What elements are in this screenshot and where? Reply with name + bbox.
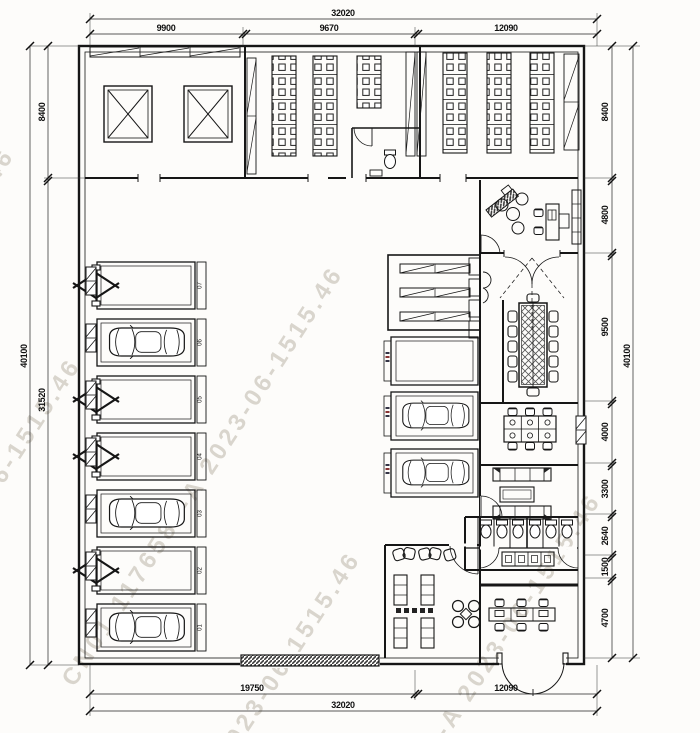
bay-number-label: 04 [198,453,204,460]
dim-bottom-total: 32020 [331,700,355,710]
bay-number-label: 05 [198,396,204,403]
chair-icon [495,599,504,607]
chair-icon [534,227,543,235]
dim-left-total: 40100 [19,344,29,368]
car-icon [110,496,185,530]
toilet-icon [562,520,573,538]
dim-right-seg: 4800 [600,205,610,224]
window-block [576,416,586,444]
sliding-door [240,652,380,668]
toilet-icon [481,520,492,538]
chair-icon [526,408,535,416]
dim-right-seg: 8400 [600,102,610,121]
dim-bottom-seg: 19750 [240,683,264,693]
dim-right-seg: 9500 [600,317,610,336]
storage-racks-right [443,53,554,153]
dim-top-seg: 9670 [320,23,339,33]
chair-icon [543,408,552,416]
dim-left-seg: 8400 [37,102,47,121]
dim-right-seg: 4700 [600,608,610,627]
car-icon [403,401,469,431]
car-icon [110,325,185,359]
bay-number-label: 03 [198,510,204,517]
toilet-icon [497,520,508,538]
bay-number-label: 02 [198,567,204,574]
chair-icon [534,209,543,217]
toilet-icon [385,150,396,169]
dim-right-seg: 3300 [600,479,610,498]
chair-icon [539,599,548,607]
dim-right-total: 40100 [622,344,632,368]
floor-plan-canvas: CN01-1176588-A 2023-06-1515.46 CN01-1176… [0,0,700,733]
dim-right-seg: 4000 [600,422,610,441]
dim-right-seg: 1500 [600,557,610,576]
bay-number-label: 01 [198,624,204,631]
toilet-icon [546,520,557,538]
floor-plan-page: CN01-1176588-A 2023-06-1515.46 CN01-1176… [0,0,700,733]
dim-top-seg: 12090 [494,23,518,33]
dim-top-total: 32020 [331,8,355,18]
chair-icon [517,599,526,607]
bay-number-label: 06 [198,339,204,346]
car-icon [403,458,469,488]
bay-number-label: 07 [198,282,204,289]
dim-right-seg: 2640 [600,526,610,545]
dim-bottom-seg: 12090 [494,683,518,693]
toilet-icon [530,520,541,538]
dim-left-seg: 31520 [37,388,47,412]
chair-icon [508,408,517,416]
toilet-icon [513,520,524,538]
car-icon [110,610,185,644]
dim-top-seg: 9900 [157,23,176,33]
